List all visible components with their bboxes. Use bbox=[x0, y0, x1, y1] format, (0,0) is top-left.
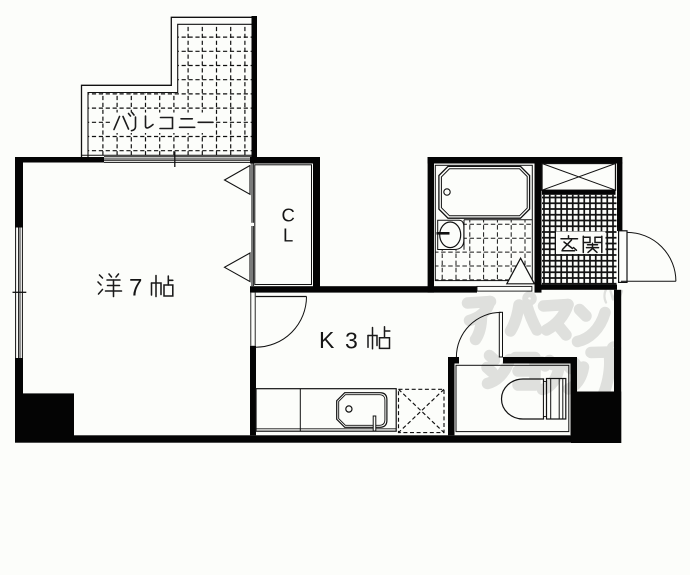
svg-text:3: 3 bbox=[345, 328, 358, 354]
svg-text:L: L bbox=[283, 225, 293, 246]
svg-text:7: 7 bbox=[129, 275, 142, 302]
svg-text:C: C bbox=[282, 205, 295, 226]
svg-text:K: K bbox=[319, 327, 335, 353]
